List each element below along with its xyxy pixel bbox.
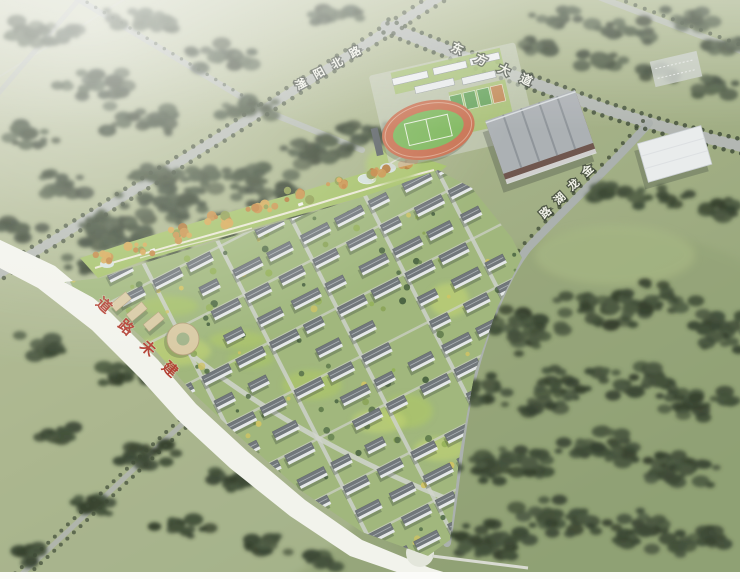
bottom-margin — [0, 572, 740, 579]
haze-overlay — [0, 0, 740, 579]
aerial-site-plan: 滏 阳 北 路 东 方 大 道 金 龙 湖 路 道 路 未 建 — [0, 0, 740, 579]
masterplan-rendering: 滏 阳 北 路 东 方 大 道 金 龙 湖 路 道 路 未 建 — [0, 0, 740, 579]
